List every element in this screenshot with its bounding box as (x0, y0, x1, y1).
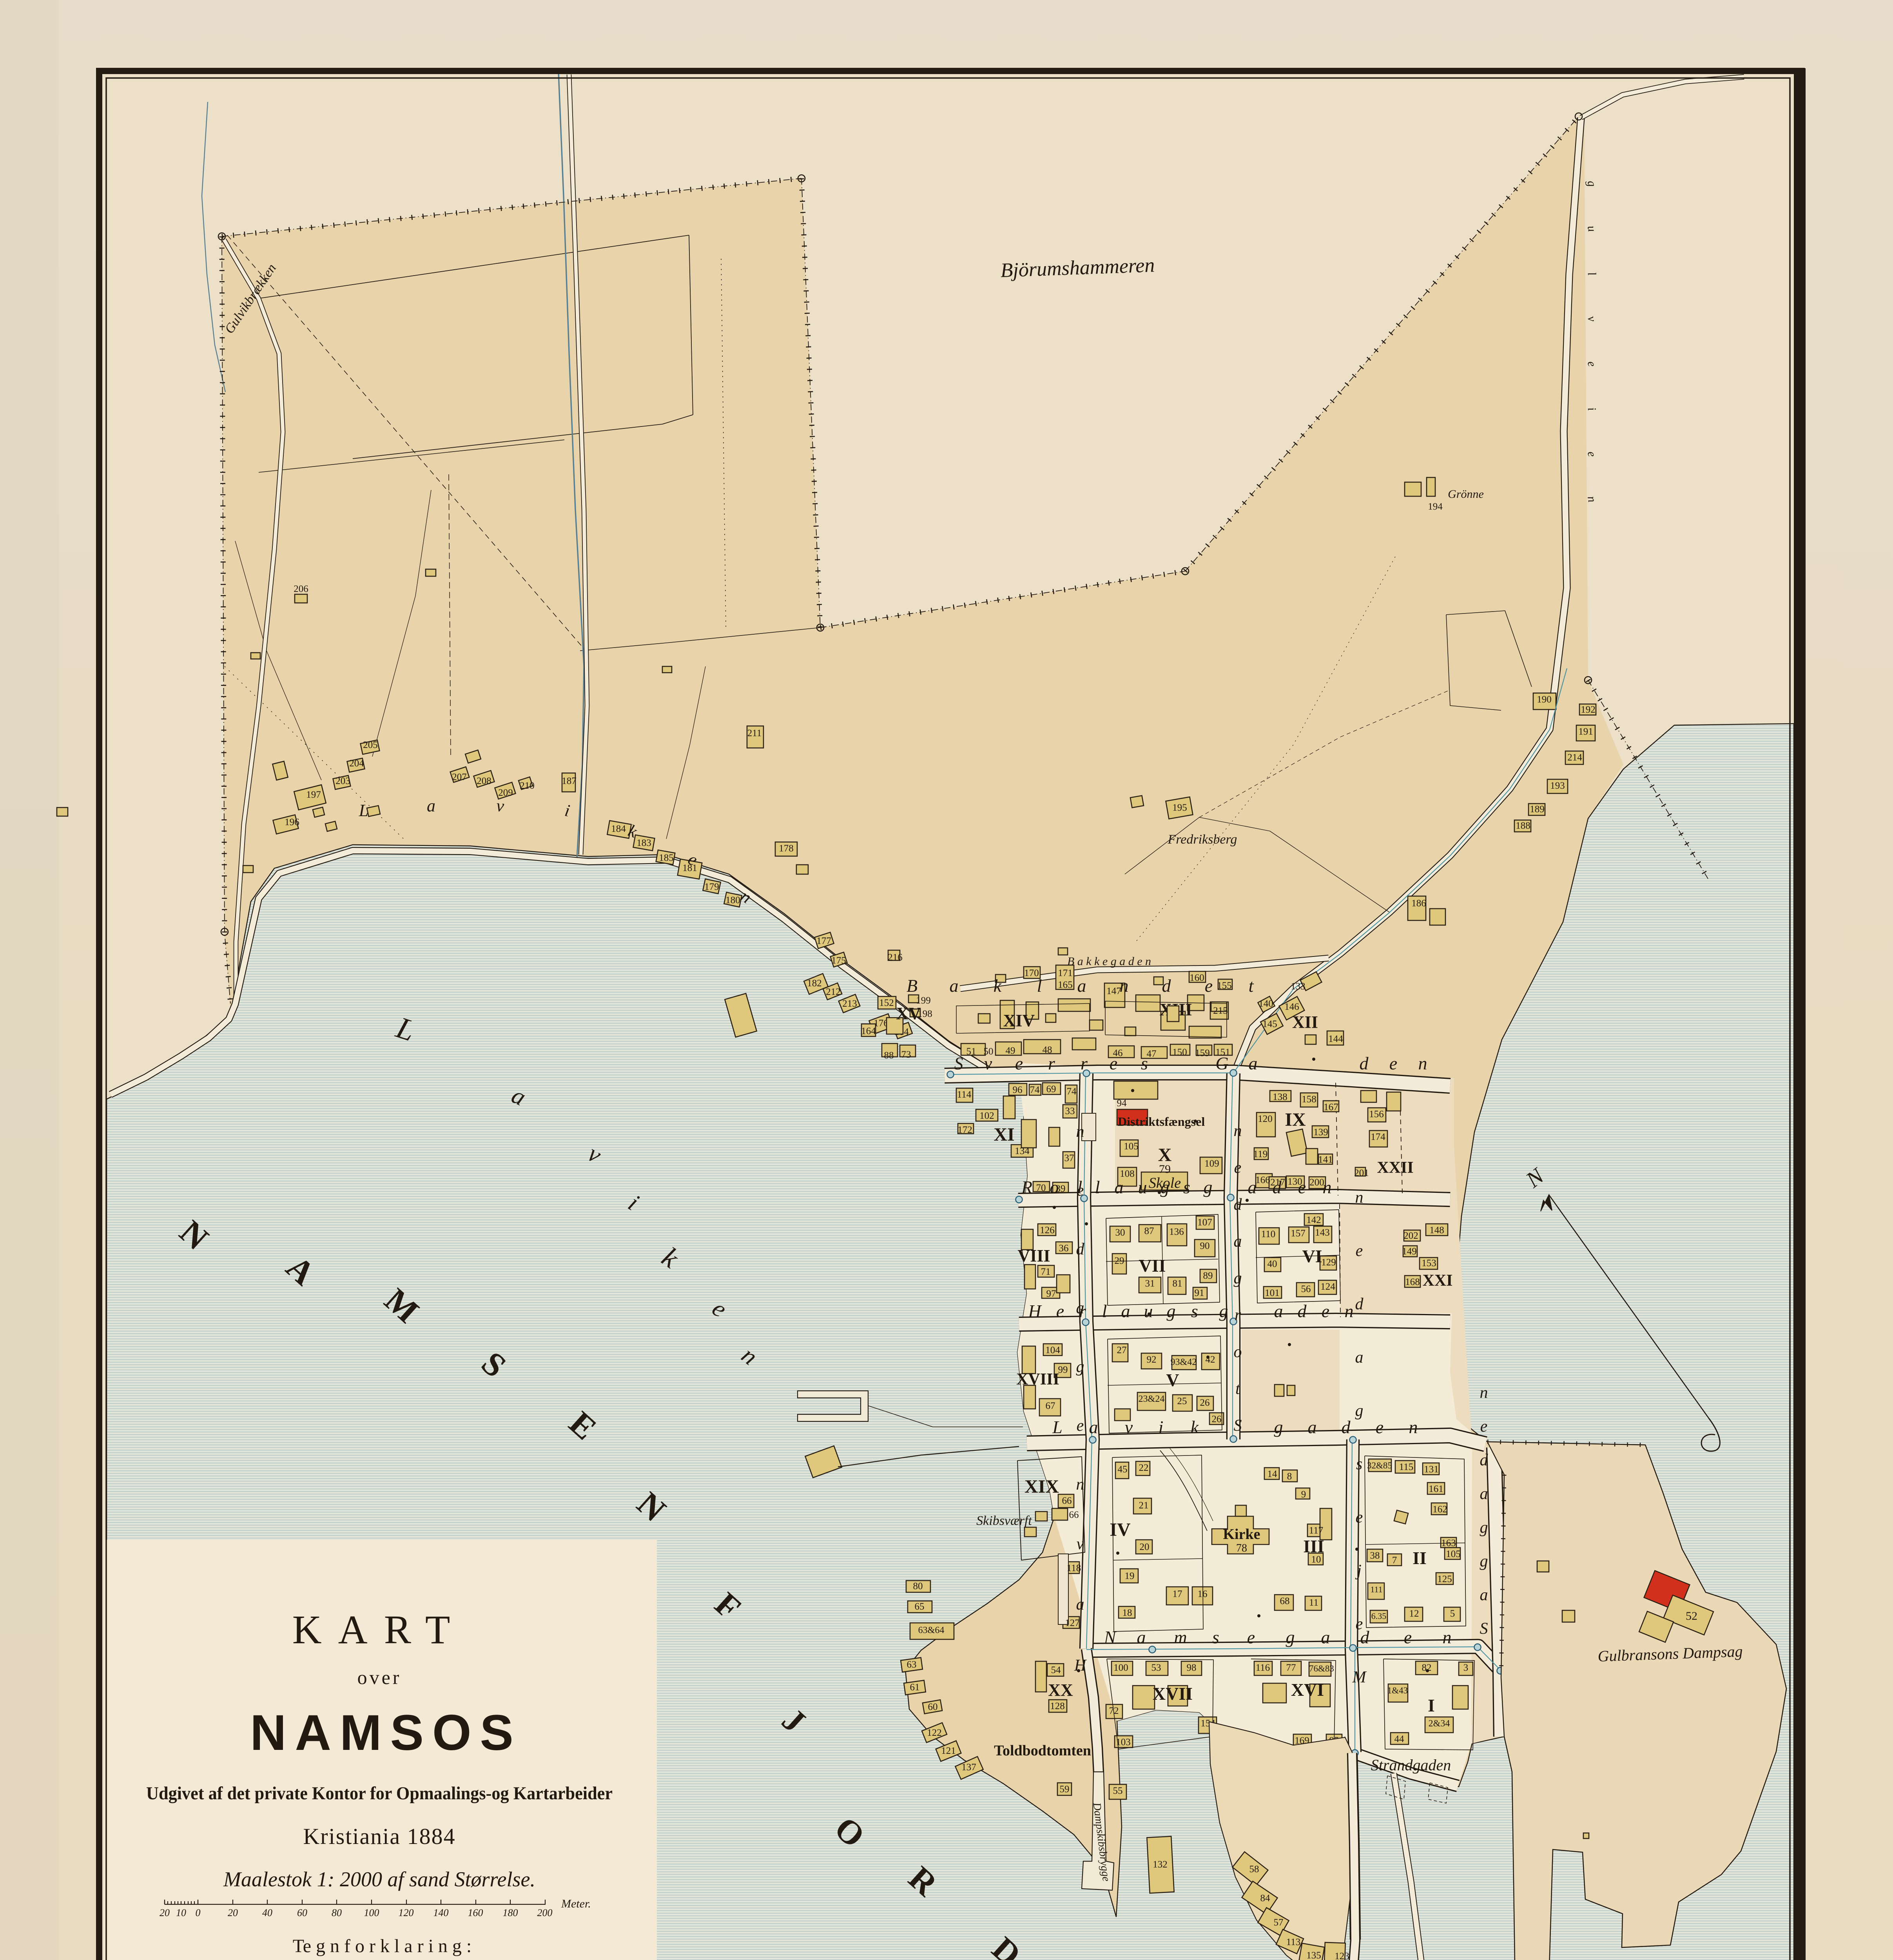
svg-text:202: 202 (1403, 1230, 1418, 1241)
svg-text:17: 17 (1173, 1589, 1182, 1599)
svg-text:XII: XII (1292, 1013, 1318, 1032)
svg-text:31: 31 (1145, 1278, 1155, 1289)
svg-text:X: X (1158, 1145, 1172, 1165)
svg-text:92: 92 (1147, 1354, 1157, 1365)
svg-text:H: H (1028, 1301, 1042, 1321)
svg-text:88: 88 (884, 1050, 894, 1061)
svg-text:37: 37 (1064, 1153, 1074, 1163)
svg-text:184: 184 (611, 824, 626, 834)
svg-text:a: a (1115, 1177, 1124, 1197)
svg-text:l: l (1037, 976, 1042, 996)
svg-text:u: u (1138, 1177, 1147, 1197)
svg-text:I: I (1428, 1695, 1435, 1715)
svg-text:e: e (1322, 1301, 1329, 1321)
svg-text:122: 122 (927, 1728, 942, 1738)
svg-text:XV: XV (896, 1004, 921, 1023)
svg-text:XX: XX (1048, 1681, 1073, 1700)
svg-text:128: 128 (1050, 1701, 1065, 1711)
svg-text:189: 189 (1530, 804, 1545, 815)
svg-text:99: 99 (1058, 1365, 1068, 1375)
svg-text:g: g (1076, 1358, 1084, 1376)
svg-text:90: 90 (1200, 1241, 1210, 1251)
svg-text:203: 203 (335, 776, 350, 786)
svg-text:k: k (1191, 1417, 1199, 1437)
svg-text:161: 161 (1429, 1484, 1443, 1494)
svg-text:e: e (1404, 1627, 1412, 1647)
svg-text:a: a (1249, 1053, 1258, 1073)
svg-text:123: 123 (1335, 1951, 1349, 1960)
svg-text:20: 20 (228, 1907, 238, 1918)
svg-text:80: 80 (332, 1907, 342, 1918)
svg-text:57: 57 (1274, 1917, 1284, 1928)
svg-text:11: 11 (1309, 1597, 1318, 1608)
svg-text:g: g (1234, 1269, 1242, 1287)
svg-text:g: g (1286, 1627, 1295, 1647)
svg-text:Kristiania 1884: Kristiania 1884 (303, 1824, 455, 1849)
svg-text:121: 121 (941, 1746, 956, 1756)
svg-text:148: 148 (1429, 1225, 1444, 1236)
svg-text:100: 100 (1113, 1662, 1128, 1673)
svg-text:t: t (1235, 1380, 1240, 1398)
svg-text:61: 61 (910, 1682, 920, 1693)
svg-text:m: m (1174, 1627, 1187, 1647)
svg-text:167: 167 (1324, 1102, 1338, 1112)
svg-text:118: 118 (1067, 1563, 1081, 1573)
svg-text:206: 206 (294, 584, 308, 594)
svg-text:36: 36 (1059, 1243, 1069, 1254)
svg-text:51: 51 (966, 1046, 976, 1057)
svg-text:60: 60 (928, 1702, 938, 1712)
svg-text:n: n (1234, 1122, 1242, 1140)
svg-text:53: 53 (1151, 1662, 1161, 1673)
svg-text:Toldbodtomten: Toldbodtomten (994, 1742, 1091, 1759)
svg-text:VII: VII (1139, 1256, 1166, 1276)
svg-text:e: e (1480, 1417, 1488, 1436)
svg-text:38: 38 (1370, 1550, 1380, 1561)
svg-text:164: 164 (861, 1026, 876, 1036)
svg-text:68: 68 (1280, 1596, 1290, 1606)
svg-text:162: 162 (1432, 1504, 1447, 1515)
svg-text:g: g (1167, 1301, 1176, 1321)
svg-text:26: 26 (1200, 1397, 1210, 1408)
svg-text:93&42: 93&42 (1171, 1357, 1197, 1367)
svg-text:96: 96 (1013, 1085, 1023, 1095)
svg-text:136: 136 (1169, 1227, 1184, 1237)
svg-text:33: 33 (1065, 1106, 1075, 1116)
svg-text:e: e (1234, 1159, 1242, 1177)
svg-text:45: 45 (1118, 1464, 1128, 1475)
svg-text:84: 84 (1260, 1893, 1271, 1904)
svg-text:XI: XI (994, 1124, 1014, 1145)
svg-text:132: 132 (1153, 1859, 1168, 1870)
svg-text:113: 113 (1286, 1937, 1301, 1947)
svg-text:110: 110 (1261, 1229, 1276, 1240)
svg-text:a: a (950, 976, 959, 996)
svg-text:0: 0 (196, 1907, 201, 1918)
svg-text:Distriktsfængsel: Distriktsfængsel (1118, 1114, 1205, 1129)
svg-text:208: 208 (477, 776, 491, 786)
svg-text:n: n (1076, 1123, 1084, 1141)
svg-text:101: 101 (1265, 1288, 1280, 1298)
svg-text:204: 204 (349, 758, 364, 769)
svg-text:100: 100 (364, 1907, 379, 1918)
svg-text:a: a (1480, 1586, 1488, 1604)
svg-text:127: 127 (1065, 1618, 1080, 1628)
svg-text:94: 94 (1117, 1098, 1127, 1109)
svg-text:B a k k e g a d e n: B a k k e g a d e n (1067, 955, 1151, 968)
svg-text:141: 141 (1318, 1154, 1333, 1165)
svg-text:Maalestok 1: 2000 af sand Stør: Maalestok 1: 2000 af sand Størrelse. (223, 1867, 535, 1891)
svg-text:175: 175 (831, 955, 846, 966)
svg-text:119: 119 (1253, 1149, 1268, 1160)
svg-text:77: 77 (1286, 1662, 1296, 1673)
svg-text:a: a (1077, 976, 1086, 996)
svg-text:G: G (1215, 1053, 1228, 1073)
svg-text:40: 40 (1267, 1259, 1277, 1269)
svg-text:133: 133 (1291, 981, 1306, 992)
svg-text:21: 21 (1139, 1500, 1149, 1511)
svg-text:16: 16 (1198, 1589, 1208, 1599)
svg-text:d: d (1360, 1053, 1369, 1073)
svg-text:150: 150 (1172, 1047, 1187, 1058)
svg-text:81: 81 (1173, 1278, 1182, 1289)
svg-text:9: 9 (1301, 1489, 1306, 1500)
svg-text:143: 143 (1315, 1227, 1330, 1238)
svg-text:42: 42 (1206, 1354, 1215, 1365)
svg-text:98: 98 (1187, 1662, 1197, 1673)
svg-text:80: 80 (913, 1581, 923, 1592)
svg-text:66: 66 (1069, 1510, 1079, 1520)
svg-text:117: 117 (1309, 1525, 1324, 1536)
svg-text:3: 3 (1463, 1662, 1469, 1673)
svg-text:25: 25 (1177, 1396, 1187, 1406)
svg-text:125: 125 (1437, 1574, 1452, 1584)
svg-text:158: 158 (1302, 1094, 1316, 1105)
svg-text:196: 196 (285, 817, 299, 828)
svg-text:over: over (357, 1666, 402, 1688)
svg-text:104: 104 (1045, 1345, 1060, 1356)
svg-text:n: n (1480, 1384, 1488, 1402)
svg-text:52: 52 (1686, 1610, 1697, 1622)
svg-text:59: 59 (1060, 1784, 1070, 1795)
svg-text:M: M (1352, 1668, 1367, 1686)
svg-text:V: V (1166, 1370, 1179, 1390)
svg-text:a: a (1274, 1301, 1283, 1321)
svg-text:216: 216 (888, 952, 903, 963)
svg-text:g: g (1274, 1417, 1283, 1437)
svg-text:L: L (359, 801, 368, 820)
svg-text:e: e (1356, 1508, 1363, 1526)
svg-text:n: n (1355, 1189, 1364, 1207)
svg-text:115: 115 (1399, 1462, 1414, 1472)
svg-text:R: R (1021, 1177, 1032, 1197)
svg-text:200: 200 (1309, 1177, 1324, 1188)
svg-text:213: 213 (842, 998, 857, 1009)
svg-text:171: 171 (1058, 968, 1073, 978)
svg-text:179: 179 (704, 882, 719, 892)
svg-text:23&24: 23&24 (1139, 1394, 1165, 1404)
svg-text:e: e (1356, 1615, 1363, 1633)
svg-text:131: 131 (1424, 1464, 1439, 1475)
svg-text:195: 195 (1172, 802, 1187, 813)
svg-text:49: 49 (1006, 1045, 1015, 1056)
svg-text:g: g (1204, 1177, 1213, 1197)
svg-text:III: III (1303, 1536, 1324, 1556)
svg-text:e: e (1376, 1417, 1383, 1437)
svg-text:n: n (1418, 1053, 1427, 1073)
svg-text:s: s (1141, 1053, 1148, 1073)
svg-text:102: 102 (979, 1111, 994, 1121)
svg-text:d: d (1234, 1196, 1242, 1214)
svg-text:5: 5 (1450, 1608, 1455, 1619)
svg-text:e: e (1389, 1053, 1397, 1073)
svg-text:63&64: 63&64 (918, 1625, 945, 1635)
svg-text:111: 111 (1370, 1584, 1382, 1594)
svg-text:S: S (1480, 1620, 1488, 1638)
svg-text:66: 66 (1062, 1495, 1072, 1506)
svg-text:200: 200 (537, 1907, 553, 1918)
svg-text:S: S (1234, 1417, 1242, 1435)
svg-text:116: 116 (1256, 1662, 1270, 1673)
svg-text:60: 60 (297, 1907, 307, 1918)
svg-text:177: 177 (816, 936, 831, 946)
svg-text:14: 14 (1267, 1469, 1278, 1479)
svg-text:105: 105 (1124, 1141, 1139, 1152)
svg-text:73: 73 (901, 1049, 911, 1060)
svg-text:140: 140 (1258, 998, 1273, 1009)
svg-text:22: 22 (1139, 1463, 1149, 1473)
svg-text:74: 74 (1030, 1085, 1040, 1095)
svg-text:u: u (1144, 1301, 1153, 1321)
svg-text:155: 155 (1217, 980, 1232, 991)
svg-text:II: II (1412, 1548, 1427, 1568)
svg-text:6.35: 6.35 (1371, 1611, 1387, 1621)
svg-text:e: e (1110, 1053, 1117, 1073)
svg-text:d: d (1076, 1240, 1085, 1258)
svg-text:XVIII: XVIII (1016, 1370, 1059, 1388)
svg-text:30: 30 (1115, 1227, 1125, 1238)
svg-text:120: 120 (399, 1907, 414, 1918)
svg-text:185: 185 (659, 853, 674, 863)
svg-text:l: l (1102, 1301, 1107, 1321)
svg-text:187: 187 (562, 776, 577, 786)
svg-text:Meter.: Meter. (561, 1897, 591, 1910)
svg-text:20: 20 (1140, 1542, 1150, 1552)
svg-text:135: 135 (1306, 1950, 1321, 1960)
svg-text:105: 105 (1446, 1549, 1461, 1559)
svg-text:214: 214 (1567, 752, 1582, 763)
svg-text:89: 89 (1203, 1270, 1213, 1281)
svg-text:n: n (1443, 1627, 1452, 1647)
svg-text:Kirke: Kirke (1223, 1526, 1260, 1543)
svg-text:g: g (1355, 1402, 1364, 1420)
svg-text:153: 153 (1422, 1258, 1436, 1269)
svg-text:a: a (1480, 1485, 1488, 1503)
svg-text:157: 157 (1291, 1228, 1306, 1239)
svg-text:183: 183 (636, 838, 651, 848)
svg-text:e: e (1077, 1181, 1084, 1200)
svg-text:20: 20 (160, 1907, 170, 1918)
svg-text:10: 10 (176, 1907, 186, 1918)
svg-text:n: n (1323, 1177, 1332, 1197)
svg-text:172: 172 (957, 1125, 972, 1135)
svg-text:63: 63 (907, 1659, 917, 1670)
svg-text:Fredriksberg: Fredriksberg (1168, 832, 1237, 847)
svg-text:91: 91 (1195, 1288, 1204, 1298)
svg-text:a: a (1308, 1417, 1317, 1437)
svg-text:s: s (1191, 1301, 1198, 1321)
svg-text:r: r (1081, 1053, 1088, 1073)
svg-text:32&85: 32&85 (1367, 1461, 1392, 1470)
svg-text:Grönne: Grönne (1448, 488, 1484, 501)
svg-text:s: s (1356, 1455, 1362, 1473)
svg-text:146: 146 (1284, 1002, 1299, 1012)
svg-text:74: 74 (1067, 1086, 1077, 1097)
svg-text:N: N (1104, 1627, 1117, 1647)
svg-text:58: 58 (1249, 1864, 1259, 1875)
svg-text:69: 69 (1046, 1084, 1056, 1094)
svg-text:d: d (1355, 1295, 1364, 1313)
svg-text:201: 201 (1354, 1168, 1369, 1178)
svg-text:168: 168 (1405, 1277, 1420, 1287)
svg-text:18: 18 (1122, 1608, 1132, 1618)
svg-text:e: e (1077, 1417, 1084, 1435)
svg-text:d: d (1298, 1301, 1307, 1321)
svg-text:v: v (984, 1053, 992, 1073)
svg-text:7: 7 (1392, 1555, 1397, 1566)
svg-text:137: 137 (961, 1762, 976, 1773)
svg-text:210: 210 (520, 780, 535, 791)
svg-text:Te g n f o r k l a r i n g :: Te g n f o r k l a r i n g : (293, 1936, 472, 1956)
svg-text:186: 186 (1411, 898, 1426, 909)
svg-text:67: 67 (1046, 1401, 1055, 1411)
svg-text:40: 40 (262, 1907, 272, 1918)
svg-text:n: n (1409, 1417, 1418, 1437)
svg-text:55: 55 (1113, 1786, 1123, 1796)
svg-text:a: a (1321, 1627, 1330, 1647)
svg-text:188: 188 (1516, 820, 1530, 831)
svg-text:205: 205 (363, 740, 378, 750)
svg-text:IX: IX (1285, 1109, 1306, 1130)
svg-text:r: r (1048, 1053, 1055, 1073)
svg-text:147: 147 (1106, 986, 1121, 996)
svg-text:H: H (1074, 1657, 1087, 1675)
svg-text:a: a (1355, 1348, 1364, 1367)
svg-text:160: 160 (1189, 973, 1204, 983)
svg-text:g: g (1160, 1177, 1170, 1197)
svg-text:192: 192 (1581, 704, 1596, 715)
svg-text:n: n (1076, 1475, 1084, 1494)
svg-text:159: 159 (1195, 1048, 1210, 1058)
svg-text:a: a (427, 796, 435, 815)
svg-text:180: 180 (503, 1907, 518, 1918)
svg-text:27: 27 (1117, 1345, 1127, 1356)
svg-text:XVII: XVII (1153, 1684, 1193, 1704)
svg-text:t: t (1249, 976, 1254, 996)
svg-text:140: 140 (433, 1907, 449, 1918)
svg-text:XXI: XXI (1422, 1272, 1452, 1290)
svg-text:138: 138 (1273, 1092, 1287, 1102)
svg-text:8: 8 (1287, 1471, 1292, 1482)
svg-text:e: e (1205, 976, 1213, 996)
svg-text:191: 191 (1578, 726, 1593, 737)
svg-text:s: s (1212, 1627, 1219, 1647)
svg-text:v: v (1077, 1535, 1084, 1553)
svg-text:g: g (1480, 1519, 1488, 1537)
svg-text:180: 180 (725, 895, 740, 906)
svg-text:197: 197 (306, 789, 321, 800)
svg-text:a: a (1234, 1232, 1242, 1250)
svg-text:178: 178 (779, 843, 794, 854)
svg-text:78: 78 (1236, 1542, 1247, 1554)
svg-text:76&83: 76&83 (1309, 1664, 1334, 1673)
svg-text:Skibsværft: Skibsværft (976, 1514, 1032, 1528)
svg-text:174: 174 (1371, 1132, 1385, 1142)
svg-text:70: 70 (1036, 1183, 1046, 1193)
svg-text:a: a (1076, 1595, 1084, 1613)
svg-text:Udgivet af det private Kontor: Udgivet af det private Kontor for Opmaal… (146, 1783, 613, 1804)
svg-text:47: 47 (1147, 1049, 1157, 1059)
svg-text:g: g (1219, 1301, 1228, 1321)
svg-text:B: B (907, 976, 917, 996)
svg-text:o: o (1050, 1177, 1059, 1197)
svg-text:194: 194 (1428, 501, 1443, 512)
svg-text:a: a (1076, 1299, 1084, 1317)
svg-text:56: 56 (1301, 1284, 1311, 1294)
svg-text:n: n (1345, 1301, 1354, 1321)
svg-text:e: e (1356, 1242, 1363, 1260)
svg-text:160: 160 (468, 1907, 483, 1918)
svg-text:e: e (1298, 1177, 1306, 1197)
svg-text:e: e (1015, 1053, 1023, 1073)
svg-text:182: 182 (807, 978, 822, 989)
svg-text:26: 26 (1212, 1414, 1222, 1425)
svg-text:193: 193 (1550, 780, 1565, 791)
svg-text:r: r (1235, 1306, 1241, 1324)
svg-text:19: 19 (1125, 1571, 1135, 1581)
svg-text:a: a (1137, 1627, 1146, 1647)
svg-text:207: 207 (452, 772, 467, 782)
svg-text:a: a (1089, 1417, 1098, 1437)
svg-text:NAMSOS: NAMSOS (250, 1705, 522, 1761)
svg-text:114: 114 (957, 1089, 972, 1100)
svg-text:v: v (1125, 1417, 1133, 1437)
svg-text:190: 190 (1537, 694, 1552, 705)
svg-text:e: e (1247, 1627, 1255, 1647)
svg-text:215: 215 (1213, 1005, 1228, 1016)
svg-text:12: 12 (1409, 1608, 1419, 1619)
svg-text:124: 124 (1320, 1281, 1335, 1292)
svg-text:d: d (1162, 976, 1171, 996)
svg-text:54: 54 (1051, 1665, 1061, 1675)
svg-text:Strandgaden: Strandgaden (1371, 1756, 1451, 1774)
svg-text:44: 44 (1394, 1734, 1405, 1744)
svg-text:e: e (1056, 1301, 1064, 1321)
svg-text:d: d (1273, 1177, 1282, 1197)
svg-text:a: a (1121, 1301, 1130, 1321)
svg-text:212: 212 (826, 987, 841, 997)
svg-text:156: 156 (1369, 1109, 1384, 1120)
svg-text:107: 107 (1197, 1217, 1212, 1228)
svg-text:d: d (1480, 1451, 1489, 1469)
svg-text:152: 152 (879, 998, 894, 1008)
svg-text:XVI: XVI (1291, 1680, 1324, 1700)
svg-text:149: 149 (1402, 1246, 1417, 1257)
svg-text:87: 87 (1144, 1226, 1154, 1236)
svg-text:71: 71 (1041, 1267, 1051, 1277)
svg-text:k: k (994, 976, 1002, 996)
svg-text:l: l (1095, 1177, 1100, 1197)
